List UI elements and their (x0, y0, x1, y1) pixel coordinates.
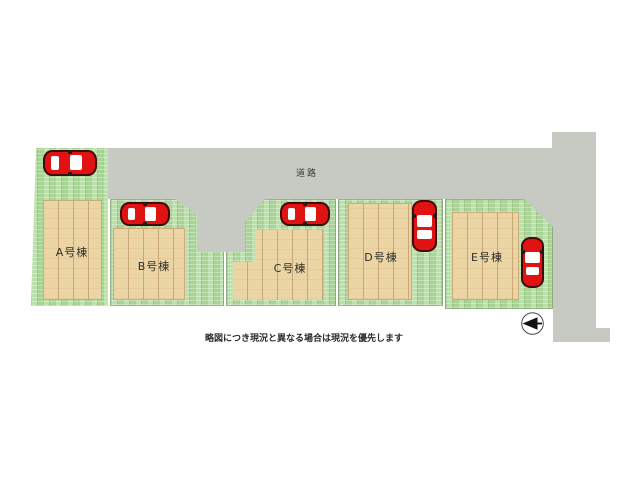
car-windshield (525, 252, 539, 264)
car-rear-window (526, 267, 539, 275)
car-mirror (143, 202, 147, 206)
car-windshield (417, 215, 433, 227)
car-mirror (68, 172, 72, 176)
car-mirror (303, 202, 307, 206)
disclaimer-caption: 略図につき現況と異なる場合は現況を優先します (164, 331, 444, 344)
car-body (43, 150, 97, 176)
car-mirror (540, 250, 544, 254)
building-a-label: A号棟 (40, 244, 104, 260)
car-mirror (433, 214, 437, 218)
car-windshield (70, 155, 83, 170)
car-body (280, 202, 330, 226)
car-body (521, 237, 544, 288)
building-b-label: B号棟 (122, 258, 186, 274)
site-plan: A号棟 B号棟 C号棟 D号棟 E号棟 (0, 0, 640, 480)
car-windshield (145, 207, 157, 221)
car-windshield (305, 207, 317, 221)
red-car-icon-lot-d (412, 200, 437, 252)
building-d-label: D号棟 (349, 249, 413, 265)
car-body (412, 200, 437, 252)
car-rear-window (288, 208, 295, 220)
building-e-label: E号棟 (455, 249, 519, 265)
car-mirror (68, 150, 72, 154)
red-car-icon-lot-e (521, 237, 544, 288)
car-mirror (303, 222, 307, 226)
building-c-label: C号棟 (258, 260, 322, 276)
car-mirror (521, 250, 525, 254)
road-label: 道路 (296, 166, 318, 179)
car-mirror (143, 222, 147, 226)
red-car-icon-lot-a (43, 150, 97, 176)
car-rear-window (417, 230, 431, 239)
car-body (120, 202, 170, 226)
red-car-icon-lot-c (280, 202, 330, 226)
car-mirror (412, 214, 416, 218)
red-car-icon-lot-b (120, 202, 170, 226)
car-rear-window (128, 208, 135, 220)
north-arrow-icon (520, 311, 545, 336)
car-rear-window (51, 156, 59, 170)
